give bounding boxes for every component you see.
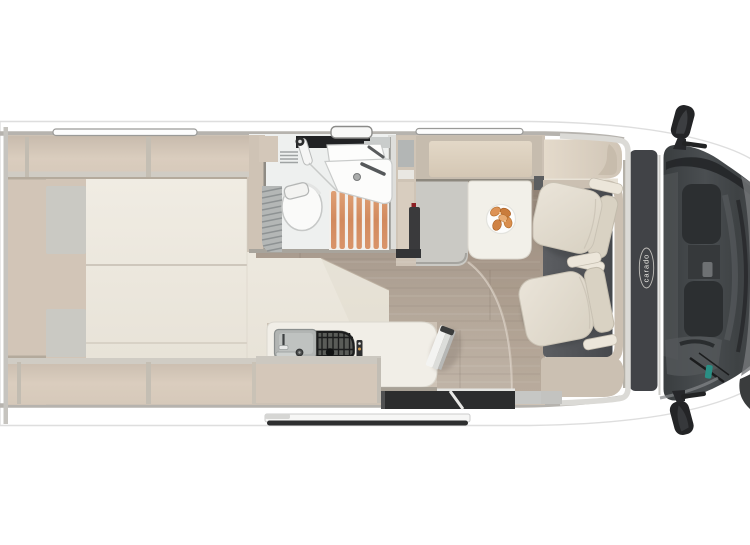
svg-text:carado: carado bbox=[641, 254, 650, 283]
